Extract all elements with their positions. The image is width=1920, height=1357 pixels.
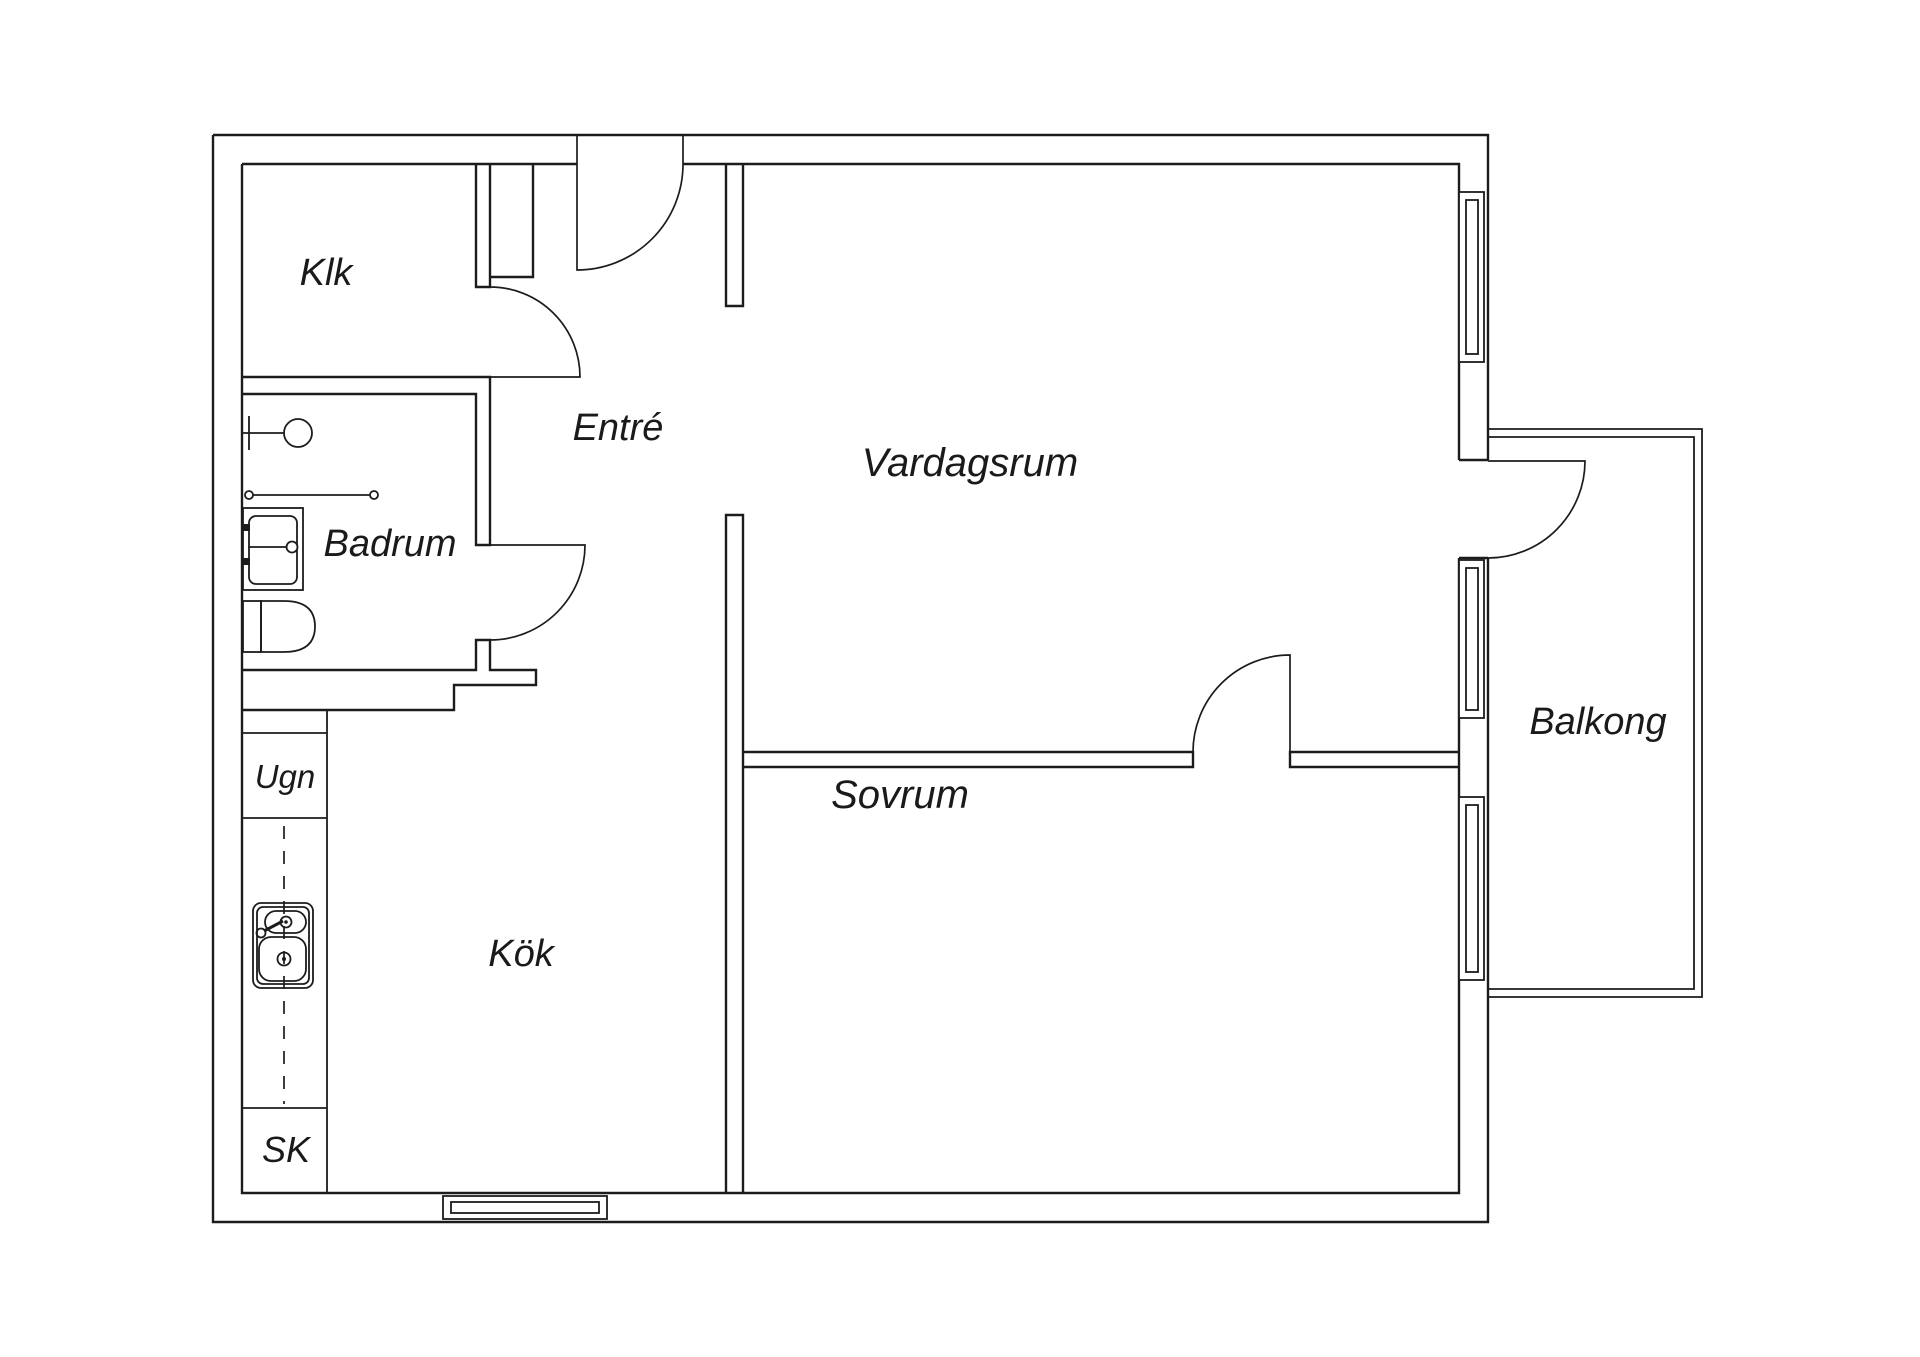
badrum-door — [490, 545, 585, 640]
window-bottom-kitchen — [443, 1196, 607, 1219]
window-right-top — [1459, 192, 1484, 362]
room-label-balkong: Balkong — [1529, 701, 1666, 743]
oven-label: Ugn — [255, 758, 316, 795]
entrance-door — [577, 135, 683, 270]
room-label-klk: Klk — [300, 252, 355, 294]
sovrum-door — [1193, 655, 1290, 767]
outer-wall — [213, 135, 1488, 1222]
toilet-icon — [243, 601, 315, 652]
window-right-middle — [1459, 560, 1484, 718]
klk-door — [490, 287, 580, 377]
floor-plan-canvas: Klk Entré Vardagsrum Badrum Ugn Kök SK S… — [0, 0, 1920, 1357]
room-label-vardagsrum: Vardagsrum — [862, 441, 1078, 485]
kitchen-sink-icon — [253, 903, 313, 988]
room-label-kok: Kök — [488, 933, 555, 975]
cabinet-label-sk: SK — [262, 1129, 312, 1170]
shower-curtain-rod-icon — [245, 491, 378, 499]
hall-wardrobe — [490, 164, 533, 277]
room-label-sovrum: Sovrum — [831, 773, 969, 817]
bathroom-sink-icon — [242, 508, 303, 590]
room-label-badrum: Badrum — [323, 523, 456, 565]
shower-icon — [242, 416, 312, 450]
windows — [443, 192, 1484, 1219]
floor-plan-page: Klk Entré Vardagsrum Badrum Ugn Kök SK S… — [0, 0, 1920, 1357]
balcony-door — [1488, 461, 1585, 558]
room-label-entre: Entré — [573, 407, 664, 449]
window-right-bottom — [1459, 797, 1484, 980]
interior-walls — [242, 164, 1459, 1193]
